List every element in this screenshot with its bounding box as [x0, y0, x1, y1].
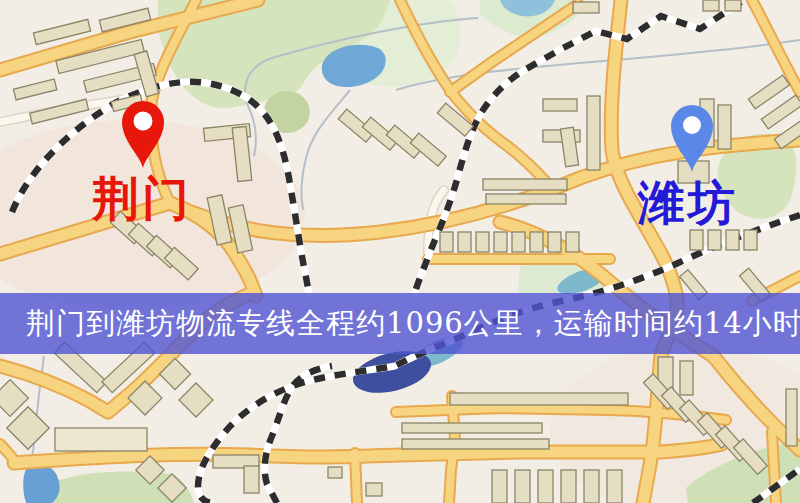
- route-info-banner: 荆门到潍坊物流专线全程约1096公里，运输时间约14小时18分钟.: [0, 293, 800, 354]
- route-info-text: 荆门到潍坊物流专线全程约1096公里，运输时间约14小时18分钟.: [0, 304, 800, 344]
- destination-city-label: 潍坊: [638, 179, 738, 226]
- origin-city-label: 荆门: [92, 175, 192, 222]
- map-image: [0, 0, 800, 503]
- logistics-route-map: 荆门 潍坊 荆门到潍坊物流专线全程约1096公里，运输时间约14小时18分钟.: [0, 0, 800, 503]
